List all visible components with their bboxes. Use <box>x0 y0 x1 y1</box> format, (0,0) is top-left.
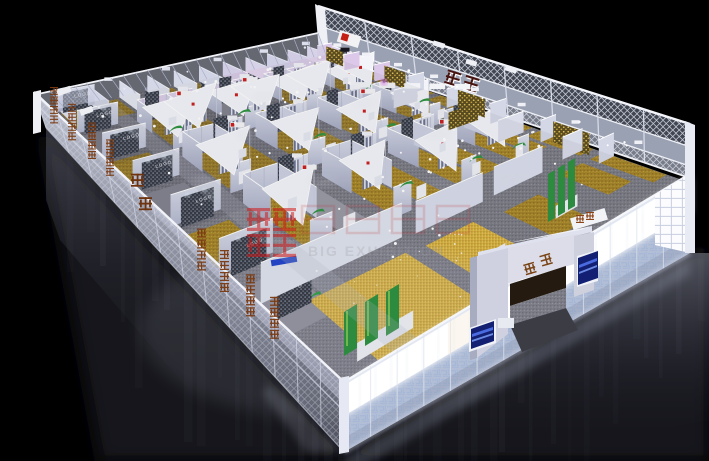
svg-text:BIG EXHIBITION: BIG EXHIBITION <box>308 243 445 259</box>
